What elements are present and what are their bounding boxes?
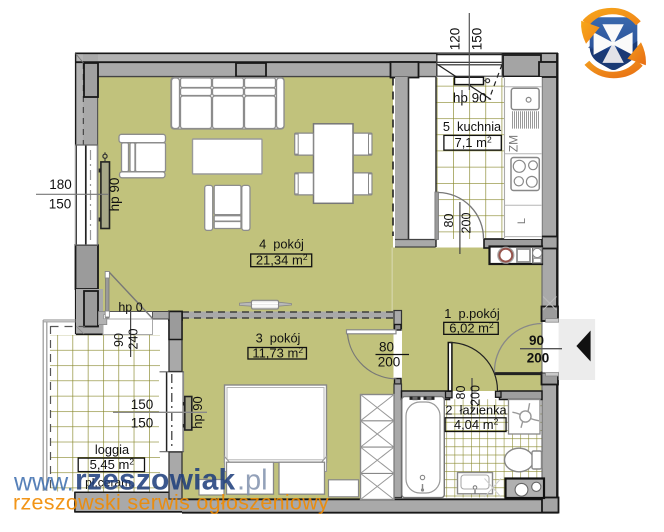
svg-text:150: 150 bbox=[131, 397, 154, 412]
svg-text:1 p.pokój: 1 p.pokój bbox=[444, 306, 500, 321]
svg-text:200: 200 bbox=[527, 351, 550, 366]
svg-text:4,04 m2: 4,04 m2 bbox=[454, 416, 499, 432]
svg-text:80: 80 bbox=[454, 386, 468, 400]
svg-text:hp 90: hp 90 bbox=[453, 91, 487, 106]
svg-text:180: 180 bbox=[49, 177, 72, 192]
svg-text:11,73 m2: 11,73 m2 bbox=[252, 345, 303, 361]
svg-text:120: 120 bbox=[448, 28, 463, 51]
svg-text:loggia: loggia bbox=[95, 442, 130, 457]
svg-text:ZM: ZM bbox=[507, 135, 521, 152]
svg-text:150: 150 bbox=[470, 28, 485, 51]
svg-text:hp 0: hp 0 bbox=[118, 301, 142, 315]
svg-text:240: 240 bbox=[127, 329, 141, 350]
svg-text:21,34 m2: 21,34 m2 bbox=[256, 252, 308, 268]
svg-text:80: 80 bbox=[379, 340, 394, 355]
svg-text:150: 150 bbox=[49, 197, 72, 212]
svg-text:5 kuchnia: 5 kuchnia bbox=[443, 119, 502, 134]
svg-text:90: 90 bbox=[529, 333, 544, 348]
svg-text:2 łazienka: 2 łazienka bbox=[445, 403, 507, 418]
svg-text:6,02 m2: 6,02 m2 bbox=[449, 320, 494, 336]
svg-text:200: 200 bbox=[378, 355, 401, 370]
svg-text:3 pokój: 3 pokój bbox=[256, 331, 301, 346]
svg-text:200: 200 bbox=[460, 213, 474, 234]
svg-text:rzeszowski serwis ogłoszeniowy: rzeszowski serwis ogłoszeniowy bbox=[13, 491, 329, 515]
svg-text:4 pokój: 4 pokój bbox=[259, 237, 304, 252]
svg-text:90: 90 bbox=[112, 333, 126, 347]
svg-text:hp 90: hp 90 bbox=[107, 178, 122, 212]
svg-text:7,1 m2: 7,1 m2 bbox=[454, 134, 492, 150]
svg-text:80: 80 bbox=[442, 214, 456, 228]
svg-text:hp 90: hp 90 bbox=[190, 396, 205, 429]
svg-text:L: L bbox=[516, 218, 528, 224]
svg-text:150: 150 bbox=[131, 416, 154, 431]
